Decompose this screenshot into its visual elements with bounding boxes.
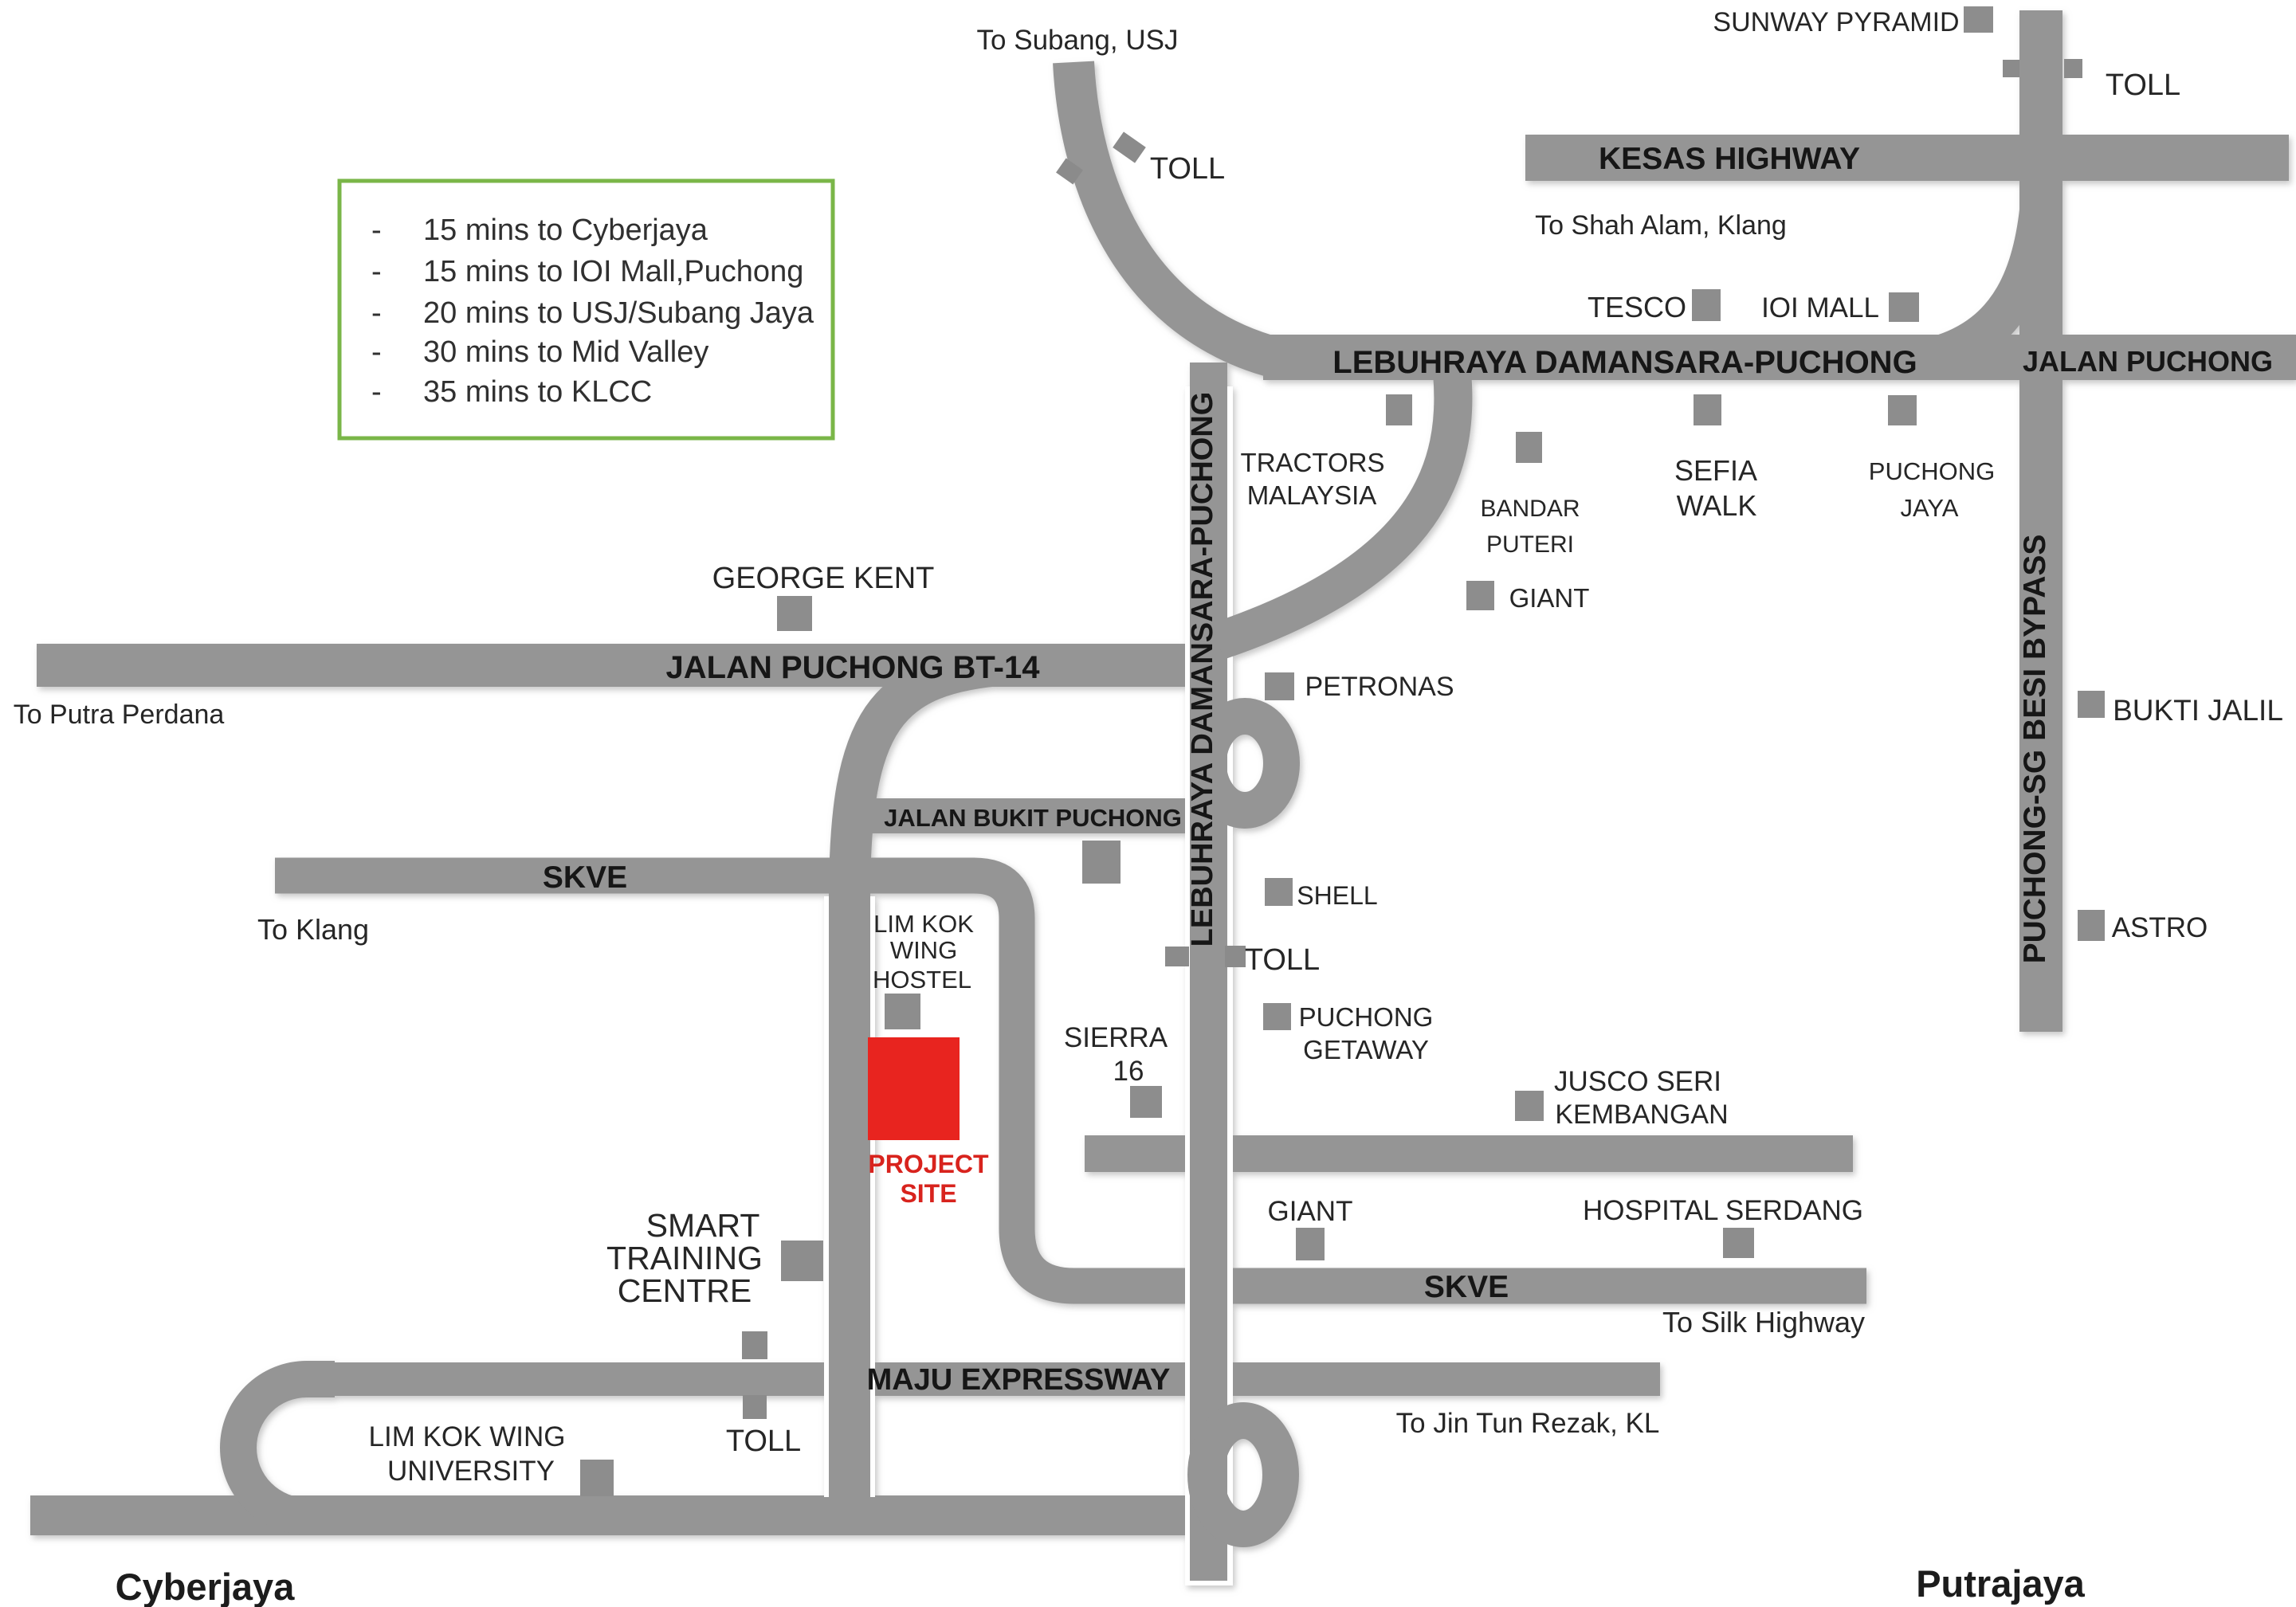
svg-text:LIM KOK WING: LIM KOK WING	[369, 1421, 566, 1452]
svg-text:PROJECT: PROJECT	[868, 1150, 989, 1178]
svg-text:TRACTORS: TRACTORS	[1241, 448, 1385, 477]
svg-text:ASTRO: ASTRO	[2112, 912, 2208, 943]
svg-text:TOLL: TOLL	[1245, 943, 1320, 977]
svg-text:To Shah Alam, Klang: To Shah Alam, Klang	[1535, 210, 1787, 241]
svg-text:GIANT: GIANT	[1268, 1196, 1353, 1227]
svg-text:LEBUHRAYA DAMANSARA-PUCHONG: LEBUHRAYA DAMANSARA-PUCHONG	[1186, 392, 1219, 947]
svg-text:-: -	[371, 255, 382, 288]
svg-text:TRAINING: TRAINING	[606, 1240, 763, 1276]
svg-text:JUSCO SERI: JUSCO SERI	[1554, 1066, 1721, 1097]
svg-text:SHELL: SHELL	[1297, 881, 1377, 910]
svg-text:Cyberjaya: Cyberjaya	[116, 1566, 296, 1607]
svg-text:IOI MALL: IOI MALL	[1761, 292, 1879, 323]
svg-text:15 mins to IOI Mall,Puchong: 15 mins to IOI Mall,Puchong	[423, 255, 803, 288]
svg-text:KESAS HIGHWAY: KESAS HIGHWAY	[1599, 142, 1860, 176]
svg-text:TOLL: TOLL	[726, 1425, 801, 1458]
svg-text:WALK: WALK	[1677, 489, 1757, 522]
svg-text:HOSTEL: HOSTEL	[873, 966, 971, 994]
svg-text:16: 16	[1113, 1056, 1144, 1087]
svg-text:GETAWAY: GETAWAY	[1303, 1035, 1429, 1064]
svg-text:To Silk Highway: To Silk Highway	[1662, 1306, 1865, 1339]
svg-text:15 mins to Cyberjaya: 15 mins to Cyberjaya	[423, 214, 708, 247]
svg-text:Putrajaya: Putrajaya	[1916, 1562, 2085, 1605]
svg-text:LIM KOK: LIM KOK	[873, 910, 974, 938]
svg-text:HOSPITAL SERDANG: HOSPITAL SERDANG	[1583, 1195, 1863, 1226]
svg-text:PETRONAS: PETRONAS	[1305, 672, 1454, 702]
svg-text:20 mins to USJ/Subang Jaya: 20 mins to USJ/Subang Jaya	[423, 296, 814, 330]
svg-text:SUNWAY PYRAMID: SUNWAY PYRAMID	[1713, 7, 1959, 37]
svg-text:SEFIA: SEFIA	[1674, 454, 1757, 487]
svg-text:SITE: SITE	[900, 1179, 956, 1208]
svg-text:PUCHONG: PUCHONG	[1869, 457, 1995, 485]
svg-text:To Subang, USJ: To Subang, USJ	[977, 25, 1179, 56]
svg-text:BUKTI JALIL: BUKTI JALIL	[2113, 694, 2283, 727]
svg-text:To Putra Perdana: To Putra Perdana	[14, 700, 225, 730]
svg-text:TOLL: TOLL	[2106, 69, 2180, 102]
svg-text:To Jin Tun Rezak, KL: To Jin Tun Rezak, KL	[1396, 1408, 1660, 1439]
svg-text:JALAN BUKIT PUCHONG: JALAN BUKIT PUCHONG	[884, 804, 1182, 832]
svg-text:-: -	[371, 335, 382, 369]
svg-text:JALAN PUCHONG: JALAN PUCHONG	[2023, 345, 2273, 378]
svg-text:PUTERI: PUTERI	[1486, 531, 1574, 558]
svg-text:LEBUHRAYA DAMANSARA-PUCHONG: LEBUHRAYA DAMANSARA-PUCHONG	[1332, 345, 1917, 380]
svg-text:PUCHONG-SG BESI BYPASS: PUCHONG-SG BESI BYPASS	[2018, 535, 2052, 964]
svg-text:MALAYSIA: MALAYSIA	[1247, 480, 1377, 510]
svg-text:GEORGE KENT: GEORGE KENT	[712, 562, 935, 595]
svg-text:SKVE: SKVE	[1424, 1270, 1509, 1304]
svg-text:TOLL: TOLL	[1150, 152, 1225, 186]
svg-text:CENTRE: CENTRE	[618, 1272, 752, 1309]
svg-text:TESCO: TESCO	[1588, 291, 1686, 323]
svg-text:BANDAR: BANDAR	[1480, 496, 1580, 522]
svg-text:UNIVERSITY: UNIVERSITY	[387, 1456, 555, 1487]
svg-text:PUCHONG: PUCHONG	[1299, 1002, 1434, 1032]
svg-text:35 mins to KLCC: 35 mins to KLCC	[423, 375, 652, 409]
svg-text:WING: WING	[890, 936, 957, 964]
svg-text:JALAN PUCHONG BT-14: JALAN PUCHONG BT-14	[666, 650, 1041, 685]
svg-text:MAJU EXPRESSWAY: MAJU EXPRESSWAY	[867, 1363, 1171, 1397]
svg-text:SIERRA: SIERRA	[1064, 1022, 1168, 1053]
svg-text:30 mins to Mid Valley: 30 mins to Mid Valley	[423, 335, 708, 369]
svg-text:KEMBANGAN: KEMBANGAN	[1555, 1099, 1728, 1130]
svg-text:SKVE: SKVE	[543, 860, 627, 895]
svg-text:-: -	[371, 375, 382, 409]
svg-text:To Klang: To Klang	[257, 913, 369, 946]
svg-text:SMART: SMART	[646, 1207, 760, 1244]
svg-text:GIANT: GIANT	[1509, 583, 1590, 613]
svg-text:-: -	[371, 214, 382, 247]
svg-text:JAYA: JAYA	[1901, 494, 1959, 522]
svg-text:-: -	[371, 296, 382, 330]
